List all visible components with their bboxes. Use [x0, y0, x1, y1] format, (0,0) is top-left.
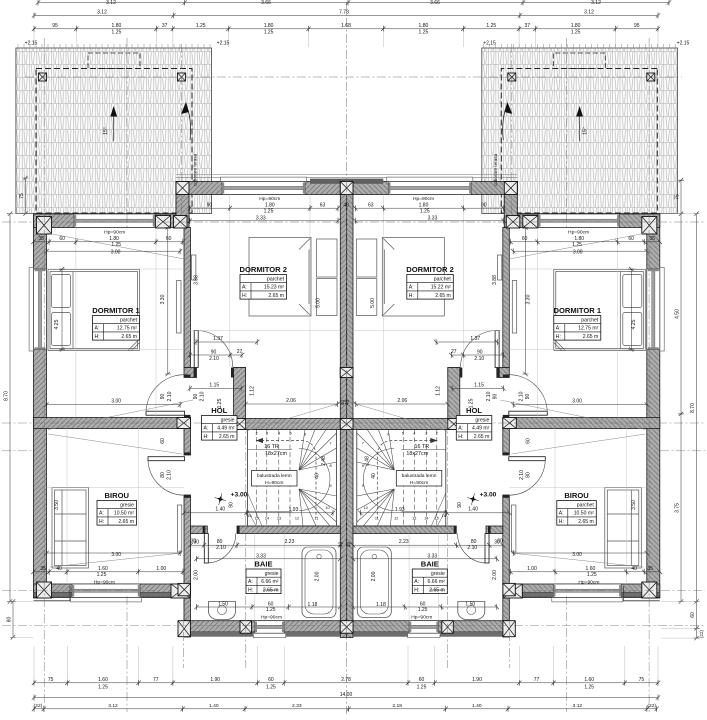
- svg-text:2.10: 2.10: [216, 545, 226, 551]
- svg-text:A:: A:: [95, 326, 100, 332]
- svg-text:30: 30: [191, 539, 197, 545]
- svg-text:DORMITOR 2: DORMITOR 2: [406, 265, 454, 274]
- svg-text:13: 13: [277, 517, 281, 521]
- svg-text:90: 90: [525, 394, 531, 400]
- svg-text:2.23: 2.23: [285, 539, 295, 545]
- svg-text:4: 4: [278, 432, 280, 436]
- svg-text:2.10: 2.10: [209, 356, 219, 362]
- svg-text:16: 16: [442, 514, 446, 518]
- svg-text:1.80: 1.80: [574, 236, 584, 242]
- svg-text:A:: A:: [242, 285, 247, 291]
- svg-text:A:: A:: [204, 426, 209, 432]
- svg-text:HOL: HOL: [211, 406, 227, 415]
- svg-text:1.90: 1.90: [210, 677, 220, 683]
- svg-text:3.66: 3.66: [430, 0, 440, 6]
- svg-text:coborare terasa: coborare terasa: [493, 153, 498, 186]
- svg-text:3: 3: [266, 432, 268, 436]
- svg-text:1.25: 1.25: [112, 29, 122, 35]
- svg-text:16 TR: 16 TR: [415, 444, 430, 450]
- svg-text:parchet: parchet: [267, 277, 285, 283]
- svg-text:90: 90: [211, 349, 217, 355]
- svg-text:15.22 m²: 15.22 m²: [431, 285, 451, 291]
- svg-text:1.25: 1.25: [264, 208, 274, 214]
- svg-text:1.12: 1.12: [436, 386, 442, 396]
- svg-text:10.50 m²: 10.50 m²: [114, 511, 134, 517]
- svg-text:A:: A:: [414, 579, 419, 585]
- svg-text:parchet: parchet: [581, 318, 599, 324]
- svg-text:9: 9: [329, 484, 331, 488]
- svg-text:A:: A:: [556, 326, 561, 332]
- svg-text:90: 90: [207, 203, 213, 209]
- svg-text:63: 63: [368, 203, 374, 209]
- svg-text:1.25: 1.25: [587, 572, 597, 578]
- svg-text:1.18: 1.18: [376, 602, 386, 608]
- svg-text:13: 13: [412, 517, 416, 521]
- svg-text:3.00: 3.00: [573, 250, 583, 256]
- svg-text:2.10: 2.10: [166, 470, 172, 480]
- svg-text:2.65 m: 2.65 m: [118, 519, 134, 525]
- svg-text:Hp=90cm: Hp=90cm: [104, 229, 125, 235]
- svg-text:5: 5: [289, 432, 291, 436]
- svg-text:75: 75: [675, 194, 681, 200]
- svg-text:gresie: gresie: [265, 571, 279, 577]
- svg-text:3.00: 3.00: [572, 552, 582, 558]
- svg-text:40: 40: [345, 400, 351, 406]
- svg-text:60: 60: [525, 438, 531, 444]
- svg-text:1.25: 1.25: [97, 572, 107, 578]
- svg-text:90: 90: [160, 394, 166, 400]
- svg-text:+2.15: +2.15: [25, 41, 38, 47]
- svg-text:(22): (22): [34, 703, 43, 709]
- svg-text:1.25: 1.25: [266, 685, 276, 691]
- svg-text:2.65 m: 2.65 m: [435, 293, 451, 299]
- svg-text:H:: H:: [559, 519, 564, 525]
- svg-text:2.10: 2.10: [486, 391, 492, 401]
- svg-text:parchet: parchet: [577, 503, 595, 509]
- svg-text:(22): (22): [647, 703, 656, 709]
- svg-text:37: 37: [162, 23, 168, 29]
- svg-text:80: 80: [526, 472, 532, 478]
- svg-text:75: 75: [19, 193, 25, 199]
- svg-text:1.50: 1.50: [465, 601, 475, 607]
- svg-text:H:: H:: [556, 334, 561, 340]
- svg-text:80: 80: [7, 617, 13, 623]
- svg-text:2.48: 2.48: [321, 456, 327, 466]
- svg-text:4.50: 4.50: [675, 309, 681, 319]
- svg-text:1.60: 1.60: [586, 566, 596, 572]
- svg-text:12.75 m²: 12.75 m²: [117, 326, 137, 332]
- svg-text:balustrada lemn: balustrada lemn: [402, 473, 437, 479]
- svg-text:2.65 m: 2.65 m: [578, 519, 594, 525]
- svg-text:DORMITOR 1: DORMITOR 1: [554, 306, 602, 315]
- svg-text:77: 77: [153, 677, 159, 683]
- svg-text:2.48: 2.48: [364, 456, 370, 466]
- svg-text:A:: A:: [248, 579, 253, 585]
- svg-text:DORMITOR 2: DORMITOR 2: [239, 265, 287, 274]
- svg-text:2.00: 2.00: [371, 571, 377, 581]
- svg-text:1.25: 1.25: [419, 29, 429, 35]
- svg-text:2.33: 2.33: [292, 703, 302, 709]
- svg-text:2.00: 2.00: [314, 571, 320, 581]
- svg-text:Hp=90cm: Hp=90cm: [578, 579, 599, 585]
- svg-text:14.00: 14.00: [340, 692, 353, 698]
- svg-text:3.12: 3.12: [97, 10, 107, 16]
- svg-text:1.68: 1.68: [341, 23, 351, 29]
- svg-text:parchet: parchet: [434, 277, 452, 283]
- svg-text:1.25: 1.25: [418, 607, 428, 613]
- svg-text:coborare terasa: coborare terasa: [193, 153, 198, 186]
- svg-text:80: 80: [160, 472, 166, 478]
- svg-text:1.60: 1.60: [98, 566, 108, 572]
- svg-text:8: 8: [329, 464, 331, 468]
- svg-text:12: 12: [394, 517, 398, 521]
- svg-text:18x27cm: 18x27cm: [265, 451, 287, 457]
- svg-text:5: 5: [402, 432, 404, 436]
- svg-text:60: 60: [166, 236, 172, 242]
- svg-text:12: 12: [295, 517, 299, 521]
- svg-text:4.25: 4.25: [54, 319, 60, 329]
- svg-text:BIROU: BIROU: [564, 491, 589, 500]
- svg-text:4: 4: [413, 432, 415, 436]
- svg-text:40: 40: [631, 566, 637, 572]
- svg-text:95: 95: [52, 23, 58, 29]
- svg-text:1.25: 1.25: [584, 685, 594, 691]
- svg-text:4.49 m²: 4.49 m²: [472, 426, 490, 432]
- svg-text:H=90cm: H=90cm: [265, 480, 283, 486]
- svg-text:gresie: gresie: [475, 418, 489, 424]
- svg-text:10.50 m²: 10.50 m²: [574, 511, 594, 517]
- svg-text:15: 15: [254, 517, 258, 521]
- svg-text:+2.15: +2.15: [217, 41, 230, 47]
- svg-text:95: 95: [634, 23, 640, 29]
- svg-text:35: 35: [40, 566, 46, 572]
- svg-text:1.40: 1.40: [215, 507, 225, 513]
- svg-text:1.25: 1.25: [98, 685, 108, 691]
- svg-text:A:: A:: [458, 426, 463, 432]
- svg-text:7.78: 7.78: [339, 10, 349, 16]
- svg-text:1.12: 1.12: [250, 386, 256, 396]
- svg-text:11: 11: [375, 517, 379, 521]
- svg-text:H=90cm: H=90cm: [410, 480, 428, 486]
- svg-text:1.80: 1.80: [571, 23, 581, 29]
- svg-text:1.00: 1.00: [156, 566, 166, 572]
- svg-text:3.66: 3.66: [261, 0, 271, 6]
- svg-text:14: 14: [265, 517, 269, 521]
- svg-text:2.06: 2.06: [397, 398, 407, 404]
- svg-text:2.00: 2.00: [193, 570, 199, 580]
- svg-text:35: 35: [647, 566, 653, 572]
- svg-text:1.25: 1.25: [264, 29, 274, 35]
- svg-text:60: 60: [628, 236, 634, 242]
- svg-text:27: 27: [237, 349, 243, 355]
- svg-text:+2.15: +2.15: [677, 41, 690, 47]
- svg-text:+3.00: +3.00: [231, 491, 248, 498]
- svg-text:Hp=90cm: Hp=90cm: [411, 615, 432, 621]
- svg-text:8: 8: [362, 464, 364, 468]
- svg-text:2.65 m: 2.65 m: [268, 293, 284, 299]
- svg-text:2.65 m: 2.65 m: [121, 334, 137, 340]
- svg-text:gresie: gresie: [221, 418, 235, 424]
- svg-text:12.75 m²: 12.75 m²: [578, 326, 598, 332]
- svg-text:15: 15: [435, 517, 439, 521]
- svg-text:H:: H:: [242, 293, 247, 299]
- svg-text:2.10: 2.10: [467, 545, 477, 551]
- svg-text:1.40: 1.40: [468, 507, 478, 513]
- svg-text:3.12: 3.12: [106, 0, 116, 6]
- svg-text:Hp=90cm: Hp=90cm: [413, 196, 434, 202]
- svg-text:BAIE: BAIE: [421, 560, 439, 569]
- svg-text:1.25: 1.25: [266, 607, 276, 613]
- svg-text:75: 75: [48, 677, 54, 683]
- svg-text:2.65 m: 2.65 m: [474, 434, 490, 440]
- svg-text:H:: H:: [248, 587, 253, 593]
- svg-text:A:: A:: [99, 511, 104, 517]
- svg-text:1.80: 1.80: [112, 23, 122, 29]
- svg-text:1.25: 1.25: [111, 242, 121, 248]
- svg-text:40: 40: [347, 542, 353, 548]
- svg-text:35: 35: [649, 236, 655, 242]
- svg-text:2.18: 2.18: [392, 703, 402, 709]
- svg-text:3.12: 3.12: [573, 703, 583, 709]
- svg-text:H:: H:: [414, 587, 419, 593]
- svg-text:37: 37: [525, 23, 531, 29]
- svg-text:4.49 m²: 4.49 m²: [217, 426, 235, 432]
- svg-text:60: 60: [522, 236, 528, 242]
- svg-text:1.50: 1.50: [218, 601, 228, 607]
- svg-text:16 TR: 16 TR: [264, 444, 279, 450]
- svg-text:+3.00: +3.00: [480, 491, 497, 498]
- svg-text:1.15: 1.15: [209, 383, 219, 389]
- svg-text:H:: H:: [458, 434, 463, 440]
- svg-text:2.10: 2.10: [519, 391, 525, 401]
- svg-text:2.78: 2.78: [341, 677, 351, 683]
- svg-text:30: 30: [497, 539, 503, 545]
- svg-text:15°: 15°: [582, 127, 588, 135]
- svg-text:77: 77: [534, 677, 540, 683]
- svg-text:1.25: 1.25: [571, 29, 581, 35]
- svg-text:1.60: 1.60: [98, 677, 108, 683]
- svg-text:Hp=90cm: Hp=90cm: [94, 579, 115, 585]
- svg-text:8.70: 8.70: [690, 403, 696, 413]
- svg-text:1.93: 1.93: [395, 507, 405, 513]
- svg-text:H:: H:: [409, 293, 414, 299]
- svg-text:14: 14: [424, 517, 428, 521]
- svg-text:6: 6: [387, 433, 389, 437]
- svg-text:3.12: 3.12: [591, 0, 601, 6]
- svg-text:60: 60: [419, 677, 425, 683]
- svg-text:2: 2: [436, 432, 438, 436]
- svg-text:1.25: 1.25: [196, 23, 206, 29]
- svg-text:3.75: 3.75: [675, 503, 681, 513]
- svg-text:27: 27: [451, 349, 457, 355]
- svg-text:A:: A:: [559, 511, 564, 517]
- svg-text:7: 7: [362, 442, 364, 446]
- svg-text:1.15: 1.15: [474, 383, 484, 389]
- svg-text:60: 60: [690, 612, 696, 618]
- svg-text:40: 40: [343, 203, 349, 209]
- svg-text:(22): (22): [699, 629, 704, 638]
- svg-text:63: 63: [320, 203, 326, 209]
- svg-text:1.37: 1.37: [470, 336, 480, 342]
- svg-text:1.18: 1.18: [308, 602, 318, 608]
- svg-text:60: 60: [268, 677, 274, 683]
- svg-text:90: 90: [477, 349, 483, 355]
- svg-text:A:: A:: [409, 285, 414, 291]
- svg-text:gresie: gresie: [431, 571, 445, 577]
- svg-text:balustrada lemn: balustrada lemn: [257, 473, 292, 479]
- svg-text:2.23: 2.23: [399, 539, 409, 545]
- svg-text:3.88: 3.88: [492, 275, 498, 285]
- svg-text:5.00: 5.00: [370, 298, 376, 308]
- svg-text:+2.15: +2.15: [483, 41, 496, 47]
- svg-text:HOL: HOL: [466, 406, 482, 415]
- svg-text:40: 40: [315, 473, 321, 479]
- svg-text:2.10: 2.10: [199, 391, 205, 401]
- svg-text:3.33: 3.33: [256, 553, 266, 559]
- svg-text:6: 6: [304, 433, 306, 437]
- svg-text:6.66 m²: 6.66 m²: [428, 579, 446, 585]
- svg-text:2.65 m: 2.65 m: [263, 587, 279, 593]
- svg-text:3.33: 3.33: [428, 216, 438, 222]
- svg-text:BAIE: BAIE: [254, 560, 272, 569]
- svg-text:DORMITOR 1: DORMITOR 1: [92, 306, 140, 315]
- svg-text:18x27cm: 18x27cm: [406, 451, 428, 457]
- svg-text:3.30: 3.30: [160, 294, 166, 304]
- svg-text:1.80: 1.80: [109, 236, 119, 242]
- svg-text:8.70: 8.70: [4, 391, 10, 401]
- svg-text:2.10: 2.10: [167, 391, 173, 401]
- svg-text:3.12: 3.12: [584, 10, 594, 16]
- svg-text:1.40: 1.40: [209, 703, 219, 709]
- svg-text:1.25: 1.25: [417, 685, 427, 691]
- svg-text:H:: H:: [99, 519, 104, 525]
- svg-text:2.10: 2.10: [474, 356, 484, 362]
- svg-text:1.00: 1.00: [527, 566, 537, 572]
- svg-text:1.40: 1.40: [472, 703, 482, 709]
- svg-text:1.25: 1.25: [486, 23, 496, 29]
- svg-text:Hp=90cm: Hp=90cm: [259, 196, 280, 202]
- svg-text:1.37: 1.37: [213, 336, 223, 342]
- svg-text:90: 90: [457, 502, 463, 508]
- svg-text:7: 7: [329, 442, 331, 446]
- svg-text:1.80: 1.80: [419, 23, 429, 29]
- svg-text:60: 60: [59, 236, 65, 242]
- svg-text:10: 10: [364, 506, 368, 510]
- svg-text:2.65 m: 2.65 m: [429, 587, 445, 593]
- svg-text:40: 40: [371, 473, 377, 479]
- svg-text:16: 16: [247, 514, 251, 518]
- svg-text:10: 10: [325, 506, 329, 510]
- svg-text:2.06: 2.06: [286, 398, 296, 404]
- svg-text:5.00: 5.00: [316, 298, 322, 308]
- svg-text:3.33: 3.33: [427, 553, 437, 559]
- svg-text:Hp=90cm: Hp=90cm: [568, 229, 589, 235]
- svg-text:parchet: parchet: [120, 318, 138, 324]
- svg-text:4.25: 4.25: [631, 319, 637, 329]
- svg-text:2: 2: [255, 432, 257, 436]
- svg-text:15°: 15°: [103, 127, 109, 135]
- svg-text:3.50: 3.50: [54, 500, 60, 510]
- svg-text:1.93: 1.93: [289, 507, 299, 513]
- svg-text:BIROU: BIROU: [105, 491, 130, 500]
- svg-text:35: 35: [38, 236, 44, 242]
- svg-text:60: 60: [160, 438, 166, 444]
- svg-text:H:: H:: [204, 434, 209, 440]
- svg-text:40: 40: [339, 542, 345, 548]
- svg-text:2.10: 2.10: [519, 470, 525, 480]
- svg-text:90: 90: [228, 502, 234, 508]
- svg-text:3.88: 3.88: [193, 275, 199, 285]
- svg-text:1.60: 1.60: [584, 677, 594, 683]
- svg-text:90: 90: [493, 394, 499, 400]
- svg-text:75: 75: [639, 677, 645, 683]
- svg-text:9: 9: [362, 484, 364, 488]
- svg-text:3.00: 3.00: [111, 552, 121, 558]
- svg-text:3.00: 3.00: [572, 399, 582, 405]
- svg-text:3: 3: [425, 432, 427, 436]
- svg-text:3.00: 3.00: [111, 399, 121, 405]
- svg-text:90: 90: [481, 203, 487, 209]
- svg-text:1.25: 1.25: [420, 208, 430, 214]
- svg-text:1.25: 1.25: [572, 242, 582, 248]
- svg-text:3.30: 3.30: [526, 294, 532, 304]
- svg-text:1.80: 1.80: [264, 23, 274, 29]
- svg-text:3.50: 3.50: [631, 500, 637, 510]
- svg-text:90: 90: [193, 394, 199, 400]
- svg-text:Hp=90cm: Hp=90cm: [261, 615, 282, 621]
- svg-text:11: 11: [315, 517, 319, 521]
- svg-text:40: 40: [56, 566, 62, 572]
- svg-text:1.90: 1.90: [472, 677, 482, 683]
- svg-text:3.00: 3.00: [111, 250, 121, 256]
- svg-text:15.23 m²: 15.23 m²: [264, 285, 284, 291]
- svg-text:2.65 m: 2.65 m: [219, 434, 235, 440]
- svg-text:3.33: 3.33: [256, 216, 266, 222]
- svg-text:H:: H:: [95, 334, 100, 340]
- svg-text:gresie: gresie: [120, 503, 134, 509]
- svg-text:2.00: 2.00: [492, 570, 498, 580]
- svg-text:2.65 m: 2.65 m: [583, 334, 599, 340]
- svg-text:6.66 m²: 6.66 m²: [261, 579, 279, 585]
- svg-text:3.12: 3.12: [108, 703, 118, 709]
